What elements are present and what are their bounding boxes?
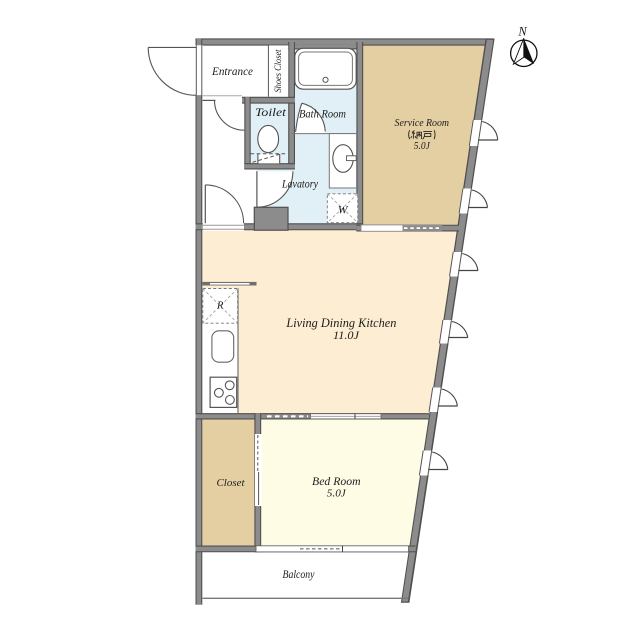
svg-text:5.0J: 5.0J [327,488,347,500]
svg-text:11.0J: 11.0J [333,330,360,342]
svg-text:Entrance: Entrance [211,66,253,78]
svg-text:Lavatory: Lavatory [281,179,319,191]
svg-text:Living Dining Kitchen: Living Dining Kitchen [285,315,396,330]
svg-text:Bed Room: Bed Room [312,474,361,488]
svg-text:Balcony: Balcony [283,569,316,581]
svg-text:N: N [517,25,527,39]
svg-text:Toilet: Toilet [255,107,287,119]
svg-text:W: W [338,204,349,216]
svg-text:Shoes Closet: Shoes Closet [273,49,283,92]
svg-text:5.0J: 5.0J [414,140,431,152]
svg-text:Service Room: Service Room [395,117,450,129]
svg-text:Bath Room: Bath Room [299,109,346,121]
svg-text:Closet: Closet [217,478,246,489]
svg-text:R: R [216,301,224,312]
